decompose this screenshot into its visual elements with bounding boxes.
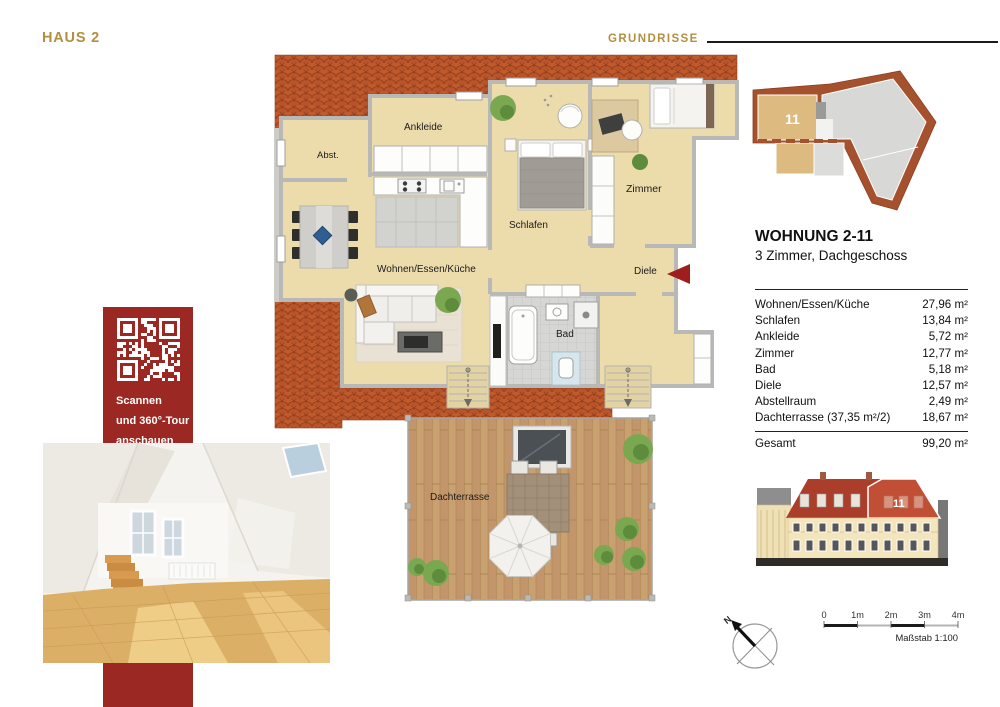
area-value: 27,96 m² bbox=[922, 297, 968, 313]
area-total-row: Gesamt99,20 m² bbox=[755, 431, 968, 452]
total-label: Gesamt bbox=[755, 436, 796, 452]
scale-tick-label: 4m bbox=[952, 610, 965, 620]
area-row: Zimmer12,77 m² bbox=[755, 346, 968, 362]
area-label: Zimmer bbox=[755, 346, 794, 362]
house-heading: HAUS 2 bbox=[42, 30, 100, 46]
key-plan-unit-number: 11 bbox=[785, 111, 800, 127]
desk-icon bbox=[592, 100, 642, 152]
tv-board-icon bbox=[398, 332, 442, 352]
total-value: 99,20 m² bbox=[922, 436, 968, 452]
elevation-unit-number: 11 bbox=[893, 498, 905, 510]
area-row: Abstellraum2,49 m² bbox=[755, 394, 968, 410]
area-table: Wohnen/Essen/Küche27,96 m² Schlafen13,84… bbox=[755, 289, 968, 452]
building-elevation: 11 bbox=[755, 468, 950, 573]
area-label: Schlafen bbox=[755, 313, 800, 329]
compass-icon: N bbox=[722, 612, 784, 674]
room-label-zimmer: Zimmer bbox=[626, 183, 662, 195]
key-plan: 11 bbox=[748, 66, 948, 214]
area-value: 2,49 m² bbox=[929, 394, 968, 410]
section-heading: GRUNDRISSE bbox=[608, 33, 699, 45]
area-label: Abstellraum bbox=[755, 394, 816, 410]
roof-terrace bbox=[405, 415, 655, 601]
room-label-diele: Diele bbox=[634, 266, 657, 277]
scale-caption: Maßstab 1:100 bbox=[895, 632, 958, 643]
area-label: Wohnen/Essen/Küche bbox=[755, 297, 870, 313]
zimmer-door-gap bbox=[588, 210, 592, 236]
stairs-icon bbox=[605, 366, 651, 408]
scale-tick-label: 2m bbox=[885, 610, 898, 620]
umbrella-icon bbox=[490, 516, 551, 577]
stairs-icon bbox=[447, 366, 489, 408]
toilet-icon bbox=[552, 352, 580, 385]
scale-tick-label: 1m bbox=[851, 610, 864, 620]
tv-wall-icon bbox=[490, 296, 506, 386]
scale-bar: 0 1m 2m 3m 4m Maßstab 1:100 bbox=[816, 606, 972, 650]
area-label: Bad bbox=[755, 362, 776, 378]
apartment-photo bbox=[43, 443, 330, 663]
sink-icon bbox=[546, 304, 568, 320]
apartment-subtitle: 3 Zimmer, Dachgeschoss bbox=[755, 248, 907, 263]
area-row: Diele12,57 m² bbox=[755, 378, 968, 394]
dining-table-icon bbox=[292, 206, 358, 268]
qr-caption-line: und 360°-Tour bbox=[116, 411, 189, 431]
room-label-abst: Abst. bbox=[317, 150, 339, 161]
hall-cabinet-icon bbox=[526, 285, 580, 297]
area-label: Dachterrasse (37,35 m²/2) bbox=[755, 410, 890, 426]
bathtub-icon bbox=[509, 306, 537, 364]
area-row: Dachterrasse (37,35 m²/2)18,67 m² bbox=[755, 410, 968, 426]
area-value: 18,67 m² bbox=[922, 410, 968, 426]
area-row: Bad5,18 m² bbox=[755, 362, 968, 378]
room-label-ankleide: Ankleide bbox=[404, 122, 443, 133]
brochure-page: HAUS 2 GRUNDRISSE bbox=[0, 0, 1000, 707]
qr-caption-line: Scannen bbox=[116, 391, 189, 411]
area-row: Schlafen13,84 m² bbox=[755, 313, 968, 329]
apartment-title: WOHNUNG 2-11 bbox=[755, 228, 873, 246]
hall-bench-icon bbox=[694, 334, 711, 384]
scale-tick-label: 0 bbox=[821, 610, 826, 620]
area-value: 5,72 m² bbox=[929, 329, 968, 345]
qr-code bbox=[117, 318, 180, 381]
shower-icon bbox=[574, 302, 598, 328]
compass-north-label: N bbox=[722, 614, 733, 626]
bed-icon bbox=[505, 139, 599, 210]
qr-caption: Scannen und 360°-Tour anschauen bbox=[116, 391, 189, 451]
area-label: Diele bbox=[755, 378, 781, 394]
kitchen-icon bbox=[374, 146, 487, 247]
area-row: Wohnen/Essen/Küche27,96 m² bbox=[755, 297, 968, 313]
area-label: Ankleide bbox=[755, 329, 799, 345]
room-label-dachterrasse: Dachterrasse bbox=[430, 492, 490, 503]
bed2-icon bbox=[650, 84, 714, 128]
floorplan: Abst. Ankleide Schlafen Zimmer Wohnen/Es… bbox=[270, 50, 750, 625]
room-label-bad: Bad bbox=[556, 329, 574, 340]
area-value: 12,77 m² bbox=[922, 346, 968, 362]
living-plant-icon bbox=[435, 287, 461, 313]
area-value: 13,84 m² bbox=[922, 313, 968, 329]
plant-icon bbox=[490, 95, 516, 121]
section-rule bbox=[707, 41, 998, 43]
area-value: 12,57 m² bbox=[922, 378, 968, 394]
area-value: 5,18 m² bbox=[929, 362, 968, 378]
photo-radiator bbox=[169, 563, 215, 579]
area-row: Ankleide5,72 m² bbox=[755, 329, 968, 345]
scale-tick-label: 3m bbox=[918, 610, 931, 620]
room-label-schlafen: Schlafen bbox=[509, 220, 548, 231]
room-label-wohnen: Wohnen/Essen/Küche bbox=[377, 264, 476, 275]
